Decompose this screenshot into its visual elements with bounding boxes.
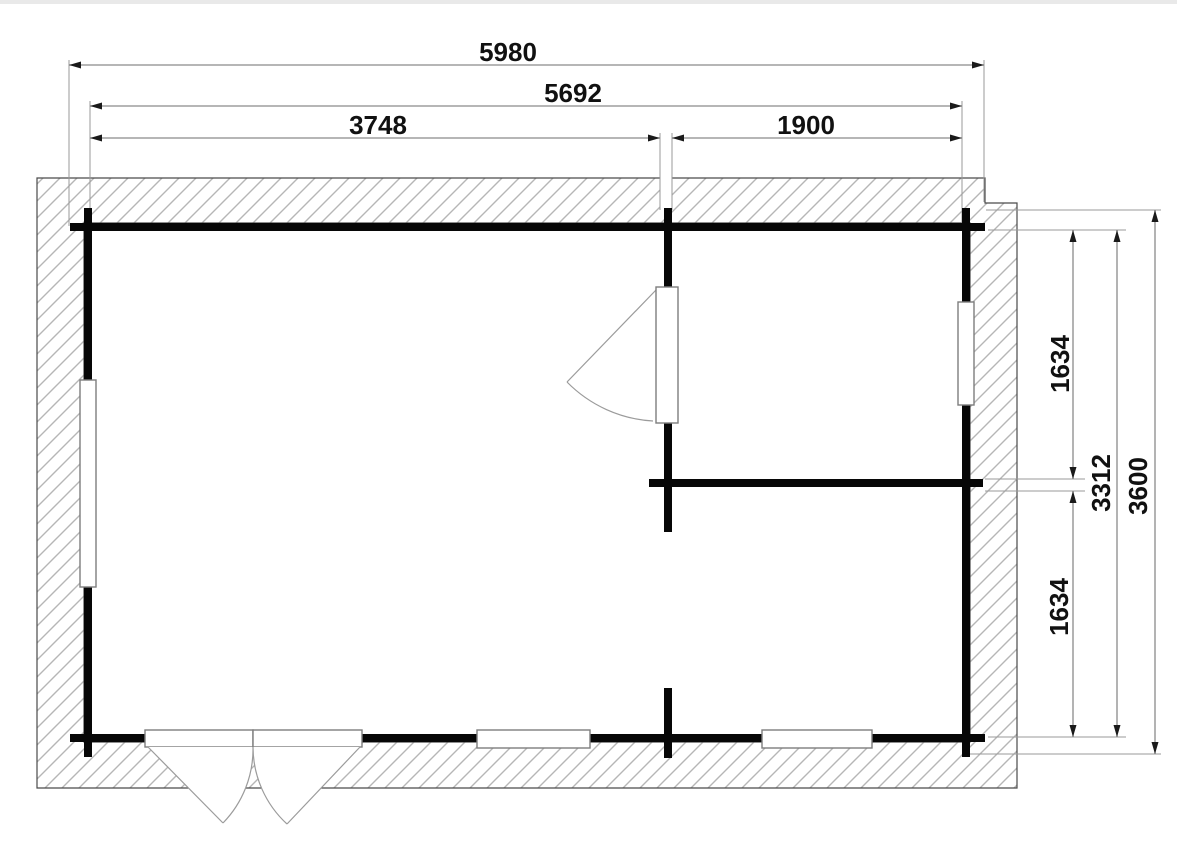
dim-depth-upper-1634: 1634	[1045, 230, 1077, 479]
window-edge-strip	[0, 0, 1177, 4]
dim-label-overall-depth: 3600	[1123, 457, 1153, 515]
dim-depth-lower-1634: 1634	[1044, 491, 1077, 737]
dim-wall-width: 5692	[90, 78, 962, 110]
dim-inner-depth-3312: 3312	[1086, 230, 1121, 737]
dim-label-depth-lower: 1634	[1044, 578, 1074, 636]
dim-left-room-width: 3748	[90, 110, 660, 142]
extension-line-gap	[660, 177, 672, 210]
dim-label-left-room-width: 3748	[349, 110, 407, 140]
floor-plan-page: 5980 5692 3748 1900 1634	[0, 0, 1177, 864]
dim-label-inner-depth: 3312	[1086, 454, 1116, 512]
window-bottom-left	[477, 730, 590, 748]
interior-door-swing	[567, 290, 656, 421]
double-door-right-leaf	[253, 730, 362, 747]
dim-overall-width: 5980	[69, 37, 984, 69]
window-left	[80, 380, 96, 587]
dim-label-right-room-width: 1900	[777, 110, 835, 140]
interior-walls	[649, 208, 983, 758]
dim-overall-depth-3600: 3600	[1123, 210, 1159, 754]
dim-label-depth-upper: 1634	[1045, 335, 1075, 393]
windows	[80, 302, 974, 748]
dim-label-overall-width: 5980	[479, 37, 537, 67]
dim-right-room-width: 1900	[672, 110, 962, 142]
dim-label-wall-width: 5692	[544, 78, 602, 108]
window-bottom-right	[762, 730, 872, 748]
floor-plan-drawing: 5980 5692 3748 1900 1634	[0, 0, 1177, 864]
interior-door-leaf	[656, 287, 678, 423]
window-right	[958, 302, 974, 405]
double-door-left-leaf	[145, 730, 253, 747]
